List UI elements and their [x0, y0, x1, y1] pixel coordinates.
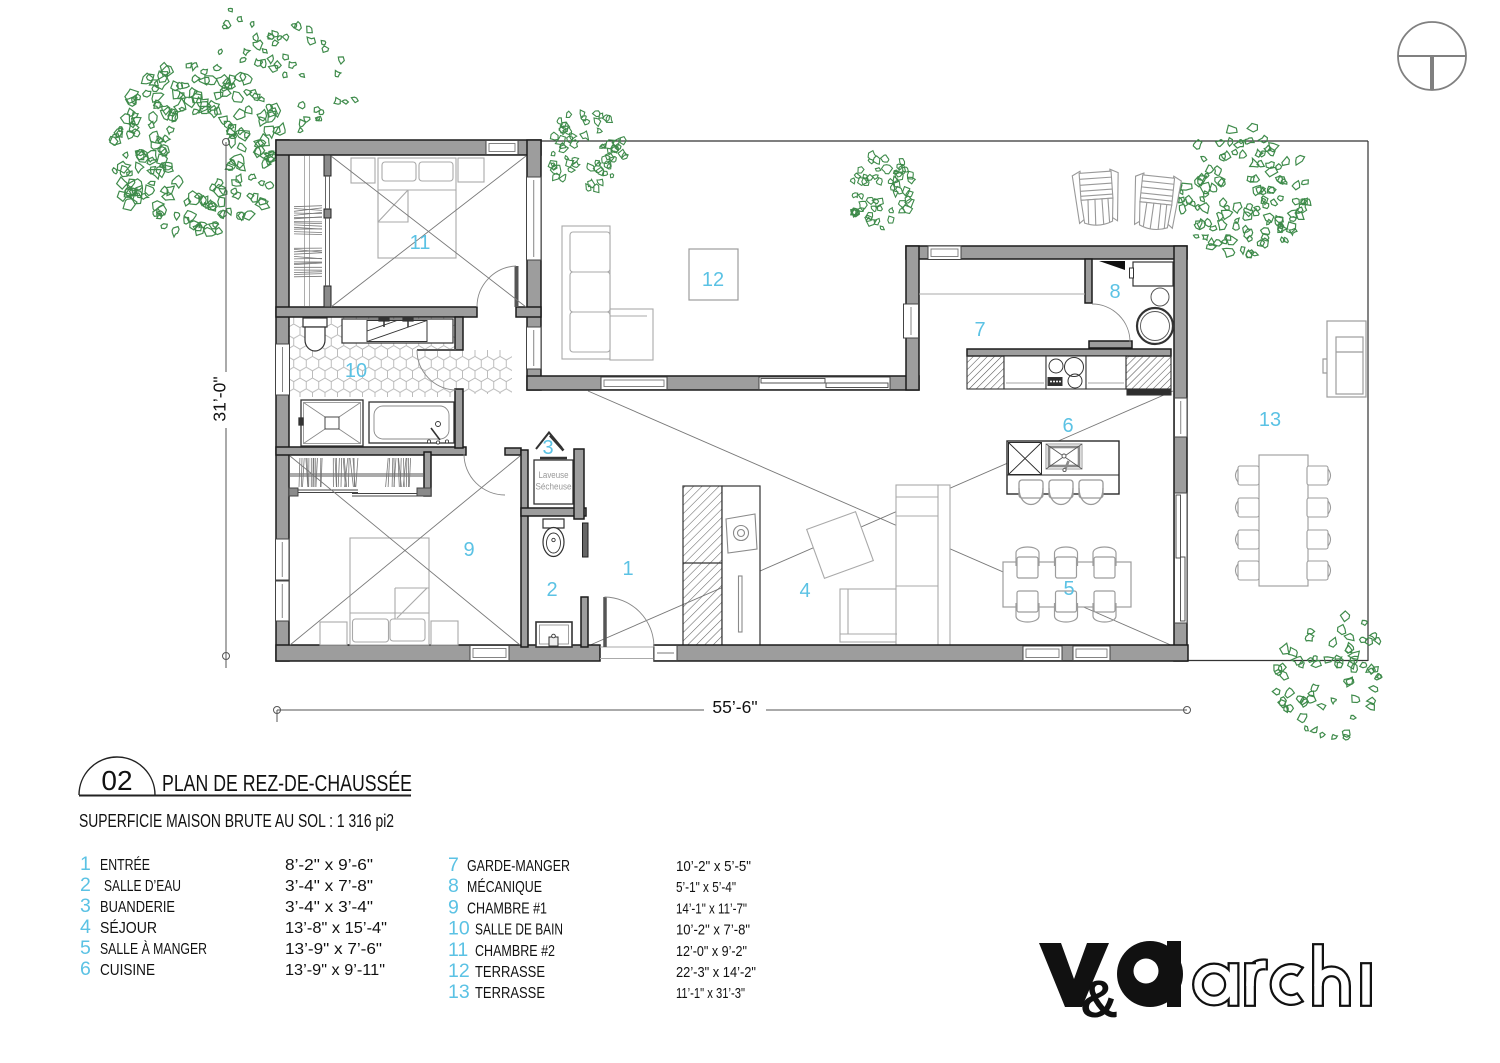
svg-text:7: 7	[448, 854, 459, 876]
svg-text:10’-2" x 7’-8": 10’-2" x 7’-8"	[676, 922, 750, 939]
svg-text:Laveuse: Laveuse	[539, 470, 569, 480]
svg-text:3’-4" x 3’-4": 3’-4" x 3’-4"	[285, 899, 373, 916]
svg-text:6: 6	[1062, 415, 1073, 437]
svg-text:TERRASSE: TERRASSE	[475, 964, 545, 981]
svg-text:ENTRÉE: ENTRÉE	[100, 857, 150, 874]
svg-text:&: &	[1080, 970, 1118, 1029]
svg-text:1: 1	[622, 558, 633, 580]
svg-text:TERRASSE: TERRASSE	[475, 985, 545, 1002]
svg-text:3: 3	[542, 437, 553, 459]
svg-text:13: 13	[448, 981, 470, 1003]
svg-text:11: 11	[448, 939, 468, 961]
svg-text:SALLE DE BAIN: SALLE DE BAIN	[475, 922, 563, 939]
svg-text:Sécheuse: Sécheuse	[536, 482, 572, 492]
svg-text:11: 11	[410, 232, 431, 254]
svg-text:8’-2" x 9’-6": 8’-2" x 9’-6"	[285, 857, 373, 874]
svg-text:SÉJOUR: SÉJOUR	[100, 920, 157, 937]
svg-text:11’-1" x 31’-3": 11’-1" x 31’-3"	[676, 985, 745, 1002]
svg-text:02: 02	[101, 765, 132, 796]
svg-text:8: 8	[448, 875, 459, 897]
svg-text:CUISINE: CUISINE	[100, 962, 155, 979]
svg-text:14’-1" x 11’-7": 14’-1" x 11’-7"	[676, 900, 747, 917]
svg-text:SALLE À MANGER: SALLE À MANGER	[100, 941, 207, 958]
svg-text:SUPERFICIE MAISON BRUTE AU SOL: SUPERFICIE MAISON BRUTE AU SOL : 1 316 p…	[79, 810, 394, 831]
svg-text:12: 12	[702, 269, 724, 291]
svg-text:9: 9	[448, 896, 459, 918]
svg-text:3: 3	[80, 895, 91, 917]
svg-text:2: 2	[80, 874, 91, 896]
svg-text:12’-0" x 9’-2": 12’-0" x 9’-2"	[676, 943, 747, 960]
svg-text:7: 7	[974, 319, 985, 341]
svg-text:4: 4	[799, 580, 810, 602]
svg-text:CHAMBRE #2: CHAMBRE #2	[475, 943, 555, 960]
svg-text:13’-9" x 7’-6": 13’-9" x 7’-6"	[285, 941, 382, 958]
svg-text:5: 5	[1063, 578, 1074, 600]
svg-text:4: 4	[80, 916, 91, 938]
svg-text:5’-1" x 5’-4": 5’-1" x 5’-4"	[676, 879, 736, 896]
svg-text:2: 2	[546, 579, 557, 601]
svg-text:SALLE D’EAU: SALLE D’EAU	[104, 878, 181, 895]
svg-text:13: 13	[1259, 409, 1281, 431]
svg-text:13’-8" x 15’-4": 13’-8" x 15’-4"	[285, 920, 387, 937]
svg-text:6: 6	[80, 958, 91, 980]
svg-text:31’-0": 31’-0"	[210, 376, 230, 421]
svg-text:3’-4" x 7’-8": 3’-4" x 7’-8"	[285, 878, 373, 895]
svg-text:10’-2" x 5’-5": 10’-2" x 5’-5"	[676, 858, 751, 875]
svg-text:8: 8	[1109, 281, 1120, 303]
svg-text:5: 5	[80, 937, 91, 959]
svg-text:1: 1	[80, 853, 91, 875]
svg-text:CHAMBRE #1: CHAMBRE #1	[467, 900, 547, 917]
svg-text:10: 10	[345, 360, 367, 382]
svg-text:MÉCANIQUE: MÉCANIQUE	[467, 879, 542, 896]
svg-text:BUANDERIE: BUANDERIE	[100, 899, 175, 916]
svg-text:22’-3" x 14’-2": 22’-3" x 14’-2"	[676, 964, 756, 981]
svg-text:55’-6": 55’-6"	[712, 697, 757, 717]
svg-text:10: 10	[448, 918, 470, 940]
svg-text:9: 9	[463, 539, 474, 561]
svg-text:GARDE-MANGER: GARDE-MANGER	[467, 858, 570, 875]
svg-text:13’-9" x 9’-11": 13’-9" x 9’-11"	[285, 962, 385, 979]
svg-text:PLAN DE REZ-DE-CHAUSSÉE: PLAN DE REZ-DE-CHAUSSÉE	[162, 770, 412, 796]
svg-text:12: 12	[448, 960, 470, 982]
